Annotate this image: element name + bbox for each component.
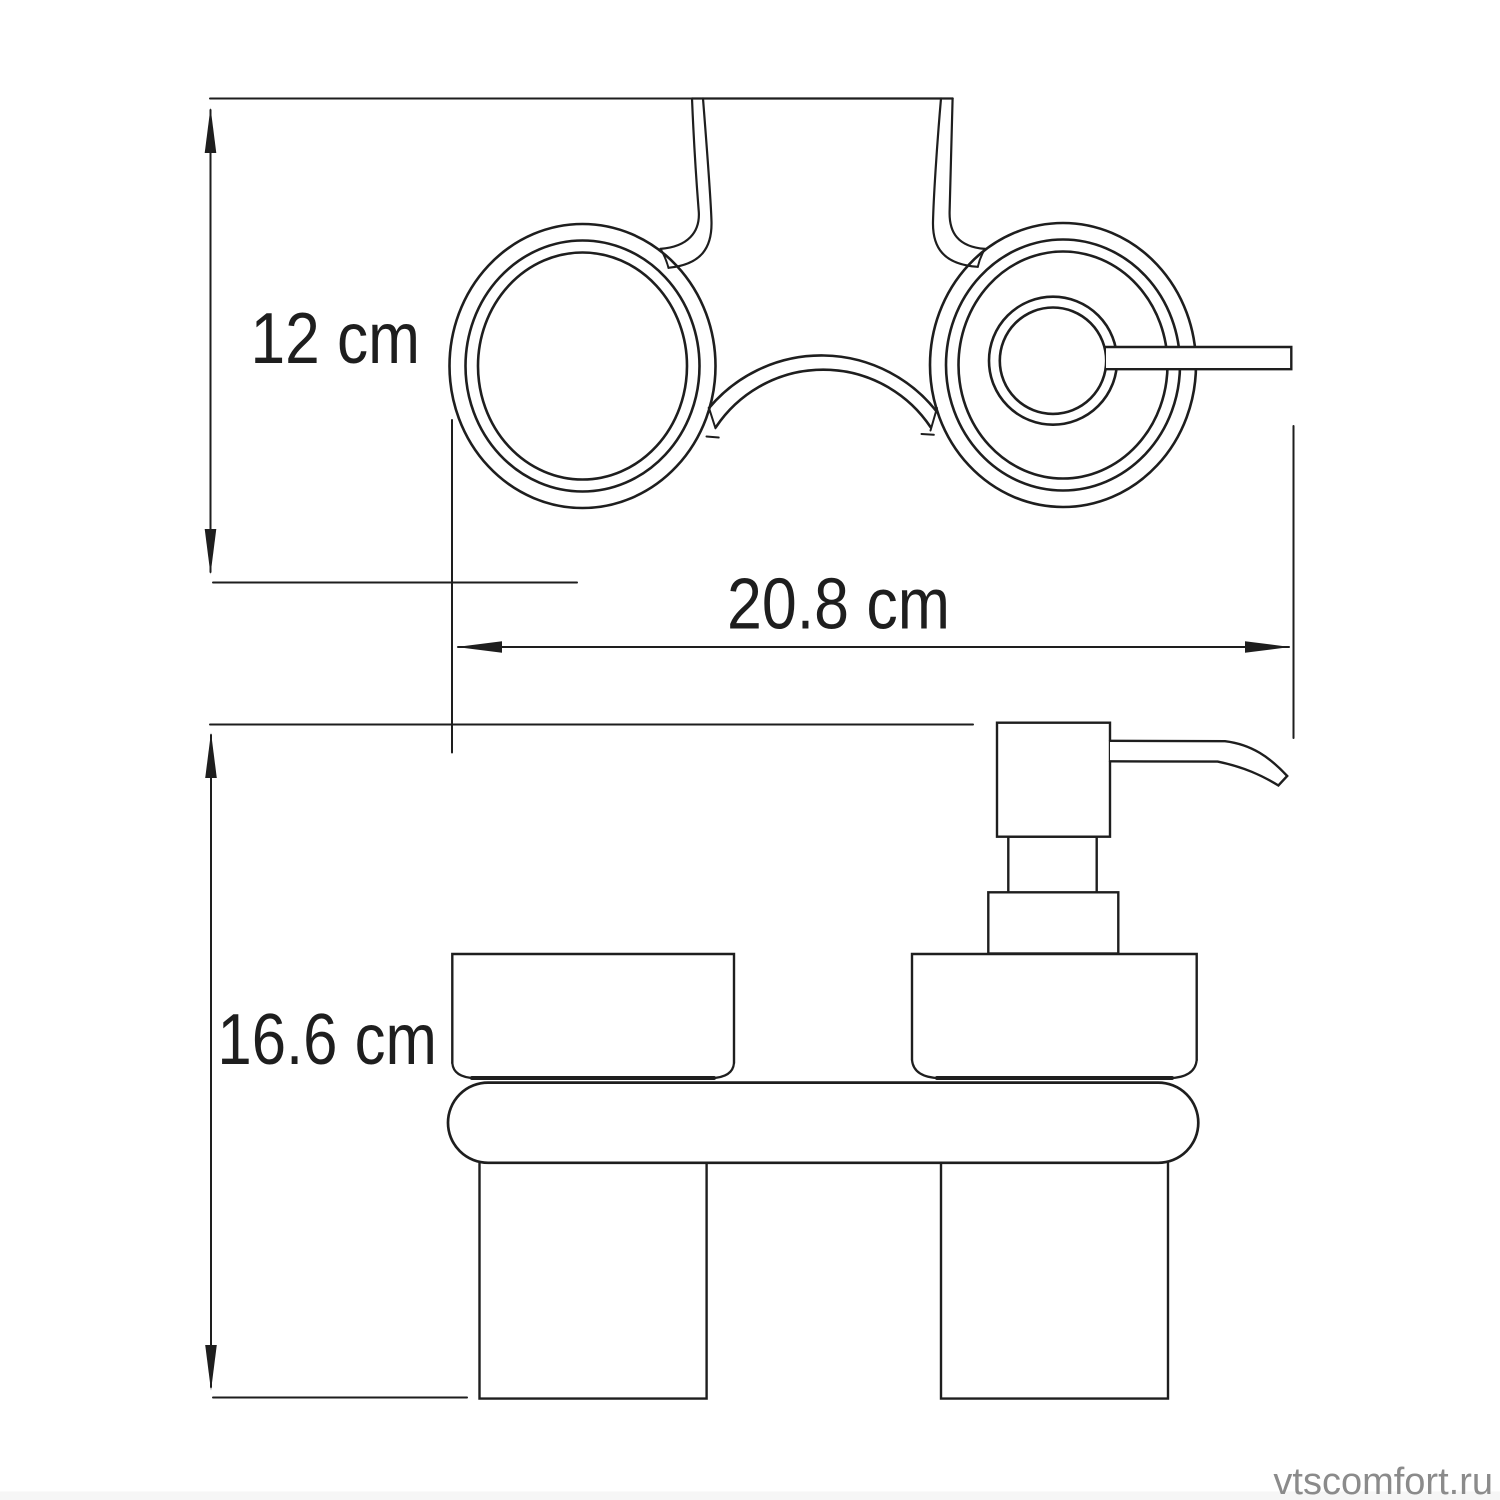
svg-text:12 cm: 12 cm <box>251 299 421 379</box>
svg-text:vtscomfort.ru: vtscomfort.ru <box>1273 1461 1493 1500</box>
svg-text:20.8 cm: 20.8 cm <box>727 565 950 645</box>
svg-text:16.6 cm: 16.6 cm <box>217 1000 437 1080</box>
